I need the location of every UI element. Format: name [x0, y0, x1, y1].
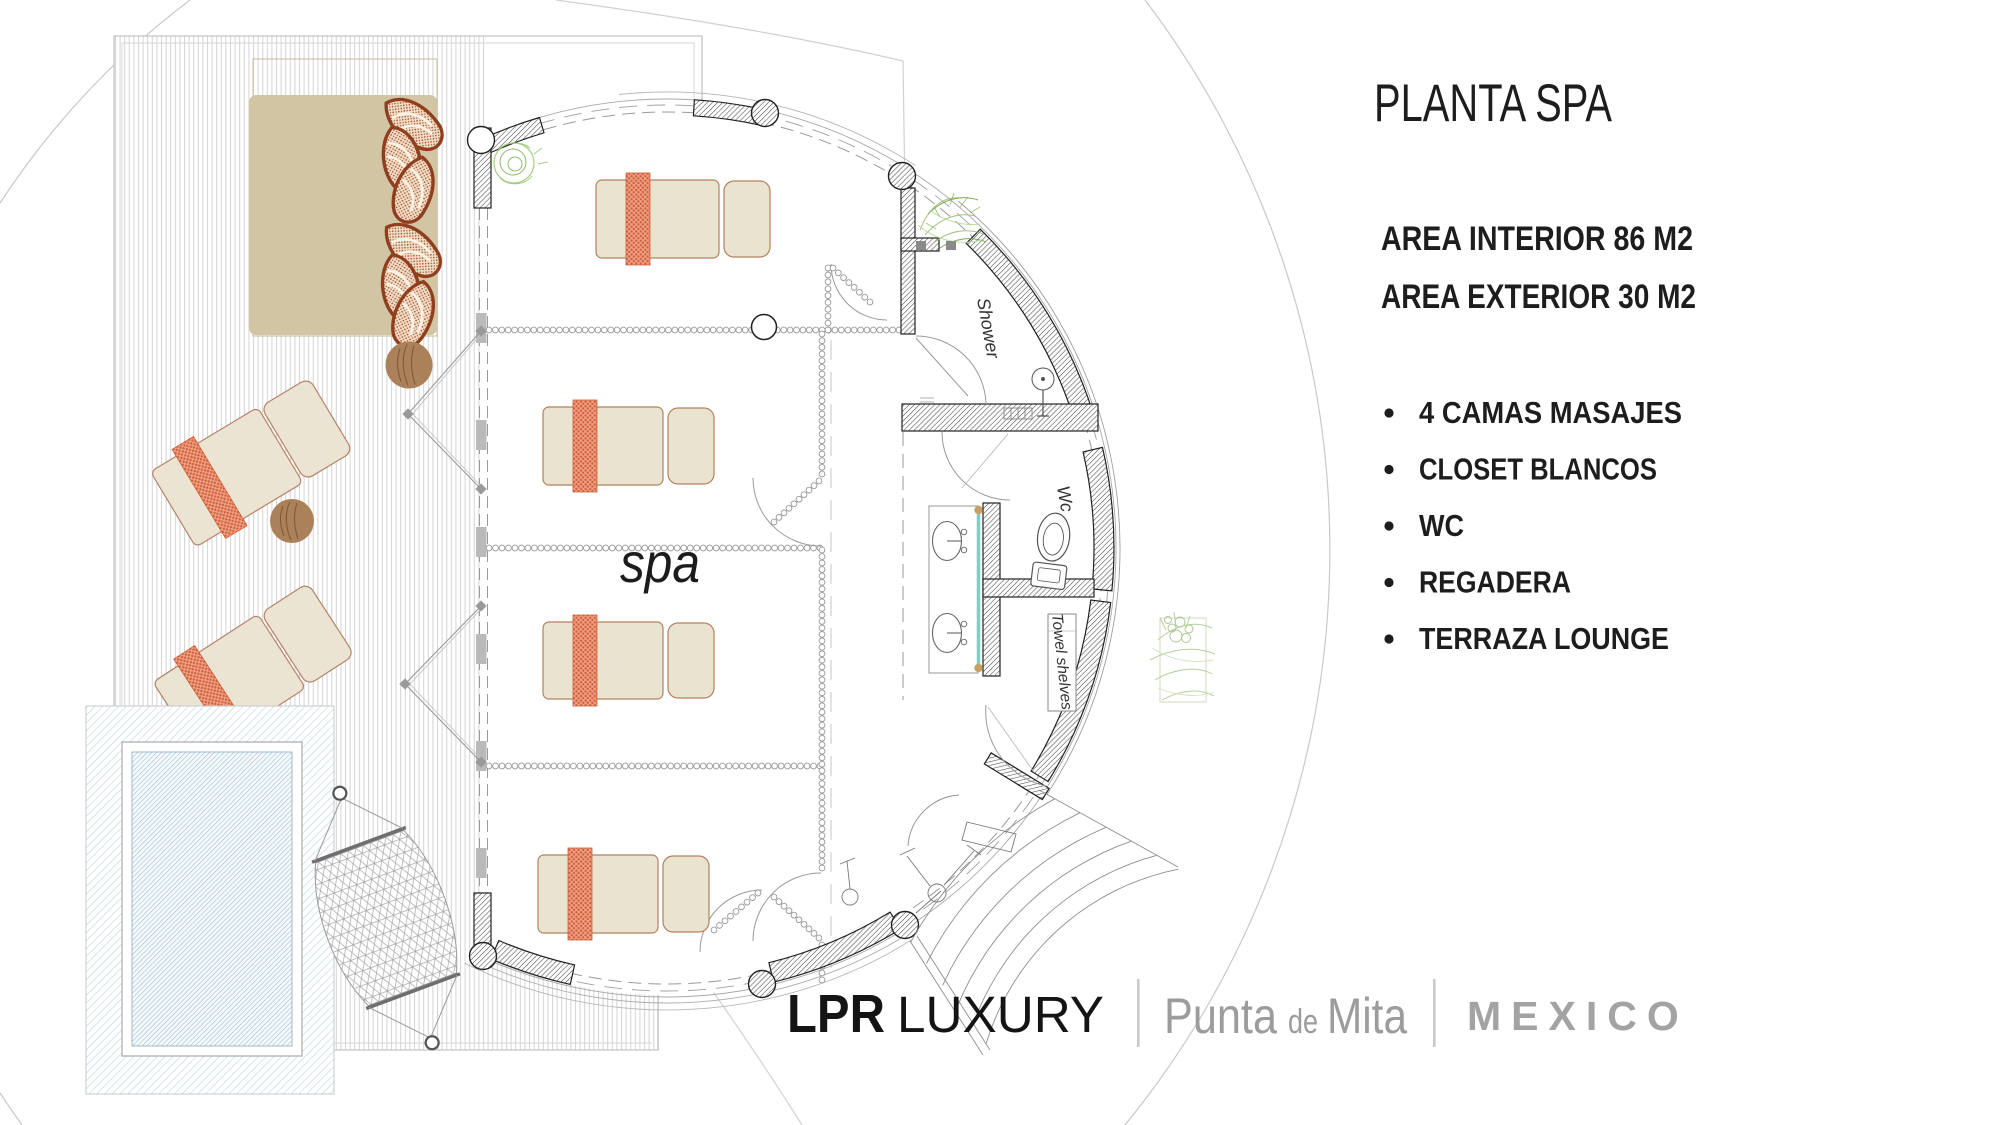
svg-text:TERRAZA LOUNGE: TERRAZA LOUNGE — [1419, 621, 1669, 656]
svg-text:CLOSET BLANCOS: CLOSET BLANCOS — [1419, 452, 1657, 487]
svg-text:spa: spa — [620, 531, 700, 594]
svg-text:Punta: Punta — [1164, 988, 1277, 1044]
svg-text:AREA INTERIOR 86 M2: AREA INTERIOR 86 M2 — [1381, 220, 1693, 258]
svg-text:Mita: Mita — [1327, 988, 1407, 1044]
svg-text:4 CAMAS MASAJES: 4 CAMAS MASAJES — [1419, 395, 1682, 430]
svg-text:de: de — [1288, 1003, 1318, 1041]
svg-text:AREA EXTERIOR 30 M2: AREA EXTERIOR 30 M2 — [1381, 278, 1696, 316]
svg-text:PLANTA SPA: PLANTA SPA — [1374, 74, 1612, 133]
svg-text:MEXICO: MEXICO — [1467, 993, 1689, 1039]
svg-text:REGADERA: REGADERA — [1419, 565, 1571, 600]
svg-text:LUXURY: LUXURY — [897, 986, 1104, 1043]
svg-text:LPR: LPR — [787, 984, 885, 1044]
svg-text:WC: WC — [1419, 508, 1464, 543]
